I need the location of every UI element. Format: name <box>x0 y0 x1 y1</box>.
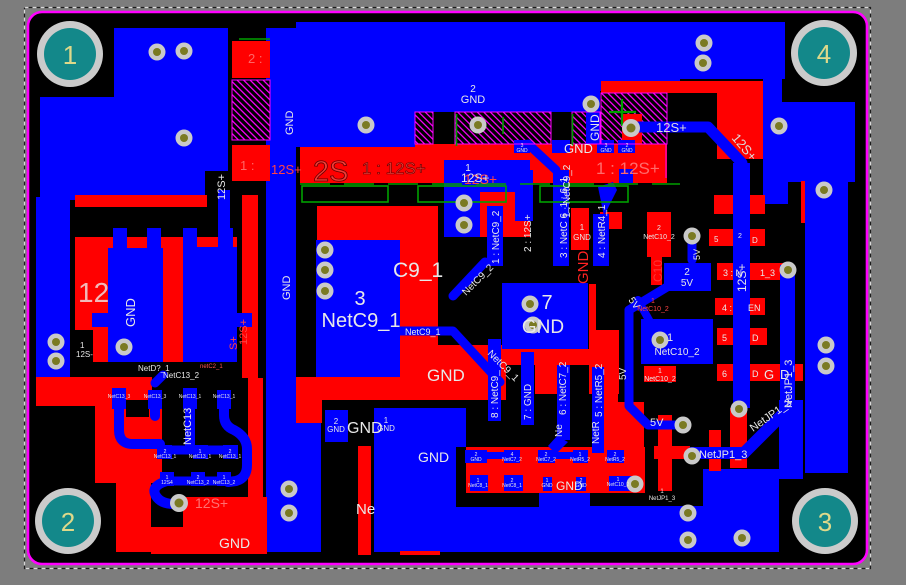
svg-text:7 : GND: 7 : GND <box>523 384 534 420</box>
svg-text:2 :: 2 : <box>248 51 262 66</box>
svg-text:1: 1 <box>667 332 673 344</box>
svg-text:1: 1 <box>80 341 85 350</box>
svg-text:NetC13_2: NetC13_2 <box>213 480 236 486</box>
svg-text:GND: GND <box>284 111 296 136</box>
svg-text:GND: GND <box>564 141 593 156</box>
svg-text:12S+: 12S+ <box>195 495 228 511</box>
svg-text:NetJP1_3: NetJP1_3 <box>649 496 676 502</box>
svg-text:C9_1: C9_1 <box>393 259 443 282</box>
svg-text:NetC13_1: NetC13_1 <box>179 394 202 400</box>
svg-text:D: D <box>752 236 758 245</box>
svg-text:netC2_1: netC2_1 <box>200 364 223 370</box>
svg-text:1 : 12S+: 1 : 12S+ <box>362 159 426 178</box>
svg-text:1: 1 <box>63 40 77 70</box>
svg-text:GND: GND <box>573 233 591 242</box>
svg-text:GND: GND <box>377 424 395 433</box>
svg-text:1 : 12S+: 1 : 12S+ <box>596 159 660 178</box>
svg-text:3: 3 <box>354 288 365 310</box>
svg-text:NetC10_2: NetC10_2 <box>643 234 675 241</box>
svg-text:6 : NetC7_2: 6 : NetC7_2 <box>558 361 569 415</box>
svg-text:12: 12 <box>78 277 109 308</box>
svg-text:GND: GND <box>575 251 592 285</box>
svg-text:NetC13_3: NetC13_3 <box>144 394 167 400</box>
svg-text:12S+: 12S+ <box>461 171 489 185</box>
svg-text:NetC13_2: NetC13_2 <box>187 480 210 486</box>
svg-text:12S+: 12S+ <box>656 120 687 135</box>
svg-text:NetR5_2: NetR5_2 <box>570 457 590 463</box>
svg-text:12S-: 12S- <box>76 350 93 359</box>
svg-text:Ne: Ne <box>356 501 375 518</box>
svg-text:D: D <box>752 333 759 343</box>
svg-text:2 : 12S+: 2 : 12S+ <box>523 214 534 252</box>
svg-text:GND: GND <box>461 94 486 106</box>
svg-text:5: 5 <box>722 333 727 343</box>
svg-text:NetD?_1: NetD?_1 <box>138 364 170 373</box>
svg-text:NetC10_2: NetC10_2 <box>644 376 676 383</box>
svg-text:1: 1 <box>651 298 655 305</box>
svg-text:C10: C10 <box>651 260 665 282</box>
svg-text:GND: GND <box>327 425 345 434</box>
svg-text:4 :: 4 : <box>722 303 732 313</box>
svg-text:Ne: Ne <box>554 424 565 437</box>
svg-text:NetC10_2: NetC10_2 <box>607 482 630 488</box>
svg-text:GND: GND <box>541 483 553 489</box>
svg-text:12S+: 12S+ <box>216 174 228 200</box>
svg-text:5V: 5V <box>618 367 629 380</box>
svg-text:GND: GND <box>516 148 528 154</box>
svg-text:NetC9_1: NetC9_1 <box>322 310 401 332</box>
svg-text:NetC9_1: NetC9_1 <box>405 327 441 337</box>
svg-text:3: 3 <box>818 507 832 537</box>
svg-text:12S+: 12S+ <box>271 162 302 177</box>
svg-text:2: 2 <box>657 225 661 232</box>
svg-text:2: 2 <box>61 507 75 537</box>
svg-text:12S4: 12S4 <box>161 480 173 486</box>
svg-text:7: 7 <box>541 292 552 314</box>
svg-text:D: D <box>780 367 789 382</box>
svg-text:EN: EN <box>748 303 761 313</box>
svg-text:NetC13_1: NetC13_1 <box>189 454 212 460</box>
svg-text:3 : N: 3 : N <box>723 268 742 278</box>
svg-text:NetC10_2: NetC10_2 <box>637 306 669 313</box>
svg-text:1 : NetC9_2: 1 : NetC9_2 <box>491 210 502 264</box>
svg-text:NetC13_1: NetC13_1 <box>154 454 177 460</box>
svg-text:NetR: NetR <box>591 421 602 444</box>
svg-text:5: 5 <box>714 235 719 244</box>
svg-text:5 : NetR5_2: 5 : NetR5_2 <box>594 363 605 417</box>
svg-text:4 : NetR4_1: 4 : NetR4_1 <box>597 204 608 258</box>
svg-text:1: 1 <box>658 368 662 375</box>
svg-text:GND: GND <box>418 449 449 465</box>
svg-text:2S: 2S <box>313 156 348 188</box>
svg-text:GND: GND <box>522 317 564 338</box>
svg-text:GND: GND <box>123 298 138 327</box>
svg-text:5V: 5V <box>681 278 694 289</box>
svg-text:1 :: 1 : <box>240 158 254 173</box>
svg-text:1_3: 1_3 <box>760 268 775 278</box>
svg-text:NetC7_2: NetC7_2 <box>536 457 556 463</box>
svg-text:NetC10_2: NetC10_2 <box>654 347 699 358</box>
svg-text:NetR5_2: NetR5_2 <box>605 457 625 463</box>
svg-text:2: 2 <box>738 233 742 240</box>
svg-text:GND: GND <box>575 483 587 489</box>
svg-text:GND: GND <box>600 148 612 154</box>
svg-text:NetC8_1: NetC8_1 <box>468 483 488 489</box>
svg-text:NetC13: NetC13 <box>182 408 194 445</box>
svg-text:GND: GND <box>427 366 465 385</box>
svg-text:D: D <box>752 369 759 379</box>
svg-text:S+: S+ <box>228 336 240 350</box>
svg-text:5V: 5V <box>692 249 702 260</box>
svg-text:1 : NetC9_2: 1 : NetC9_2 <box>562 164 573 218</box>
svg-text:NetC8_1: NetC8_1 <box>502 483 522 489</box>
svg-text:GND: GND <box>219 535 250 551</box>
svg-text:GND: GND <box>621 148 633 154</box>
svg-text:NetJP1_3: NetJP1_3 <box>699 449 747 461</box>
svg-text:GND: GND <box>281 276 293 301</box>
svg-text:1: 1 <box>580 223 585 232</box>
svg-text:NetC13_1: NetC13_1 <box>213 394 236 400</box>
svg-text:GND: GND <box>588 114 602 141</box>
svg-text:2: 2 <box>684 267 690 278</box>
svg-text:NetC13_1: NetC13_1 <box>219 454 242 460</box>
svg-text:6: 6 <box>722 369 727 379</box>
svg-text:G: G <box>764 367 774 382</box>
svg-text:8 : NetC9_: 8 : NetC9_ <box>490 370 501 418</box>
svg-text:5V: 5V <box>650 417 664 429</box>
svg-text:GND: GND <box>470 457 482 463</box>
svg-text:4: 4 <box>817 39 831 69</box>
svg-text:NetC13_3: NetC13_3 <box>108 394 131 400</box>
svg-text:NetC7_2: NetC7_2 <box>502 457 522 463</box>
